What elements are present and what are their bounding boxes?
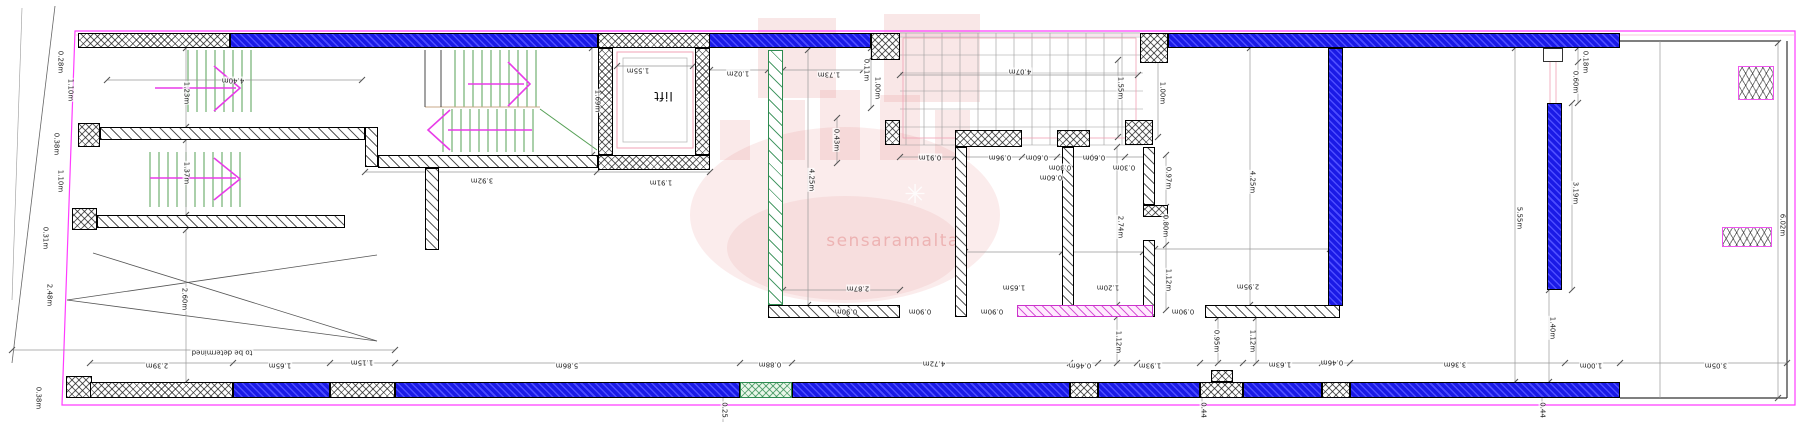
dim-label: 0.97m — [1165, 166, 1172, 190]
dim-label: 0.28m — [57, 50, 64, 74]
dim-label: 2.74m — [1117, 215, 1124, 239]
dim-label: 1.12m — [1249, 329, 1256, 353]
dim-label: 1.00m — [874, 76, 881, 100]
dim-label: 6.02m — [1779, 213, 1786, 237]
dim-label: 1.55m — [1117, 76, 1124, 100]
dim-label: 1.65m — [1002, 284, 1026, 291]
dim-label: 0.91m — [918, 154, 942, 161]
dim-label: 0.46m — [1320, 359, 1344, 366]
dim-label: 1.20m — [1096, 284, 1120, 291]
dim-label: 5.86m — [555, 362, 579, 369]
dim-label: 0.18m — [1582, 50, 1589, 74]
dim-label: 3.92m — [470, 177, 494, 184]
lift-label: lift — [652, 90, 673, 102]
dim-label: 2.95m — [1236, 283, 1260, 290]
dim-label: 0.43m — [833, 128, 840, 152]
dim-label: 1.15m — [350, 359, 374, 366]
dim-label: 2.87m — [846, 285, 870, 292]
dim-label: 3.36m — [1443, 361, 1467, 368]
dim-label: 1.73m — [817, 71, 841, 78]
dim-label: 3.05m — [1704, 362, 1728, 369]
dim-label: 2.48m — [46, 283, 53, 307]
dim-label: 2.60m — [181, 287, 188, 311]
dim-label: 4.25m — [1249, 170, 1256, 194]
dim-label: 0.96m — [988, 154, 1012, 161]
dim-label: 0.88m — [758, 361, 782, 368]
dim-label: 1.02m — [726, 70, 750, 77]
dim-label: 0.90m — [980, 308, 1004, 315]
dim-label: 0.80m — [1162, 214, 1169, 238]
dim-label: 0.38m — [35, 386, 42, 410]
dim-label: 1.91m — [649, 179, 673, 186]
dim-label: 0.60m — [1082, 154, 1106, 161]
dim-label: 0.11m — [863, 58, 870, 82]
dim-label: 0.60m — [1025, 154, 1049, 161]
dim-label: 0.90m — [1171, 308, 1195, 315]
dim-label: 1.69m — [594, 89, 601, 113]
dim-label: 0.30m — [1048, 164, 1072, 171]
dim-label: 1.65m — [268, 362, 292, 369]
dim-label: 1.12m — [1115, 330, 1122, 354]
dim-label: 4.07m — [1008, 68, 1032, 75]
dim-label: 1.63m — [1268, 361, 1292, 368]
dim-label: 0.31m — [42, 226, 49, 250]
dim-label: 1.10m — [57, 169, 64, 193]
dim-label: 0.90m — [908, 308, 932, 315]
dim-label: 0.60m — [1572, 70, 1579, 94]
dim-label: 1.10m — [67, 78, 74, 102]
note-label: to be determined — [191, 349, 254, 356]
dim-label: 0.60m — [1039, 174, 1063, 181]
dim-label: 1.40m — [1549, 316, 1556, 340]
dim-label: 1.55m — [626, 67, 650, 74]
dim-label: 0.46m — [1068, 362, 1092, 369]
dim-label: 0.30m — [1112, 164, 1136, 171]
dim-label: 4.25m — [808, 168, 815, 192]
dim-label: 0.90m — [834, 308, 858, 315]
dim-label: 4.72m — [922, 360, 946, 367]
dim-label: 1.00m — [1159, 81, 1166, 105]
dim-label: 1.37m — [183, 161, 190, 185]
dim-label: 0.44 — [1200, 401, 1207, 419]
floor-plan-canvas: ✳ sensaramalta 0.28m1.10m0.38m1.10m0.31m… — [0, 0, 1813, 422]
dim-label: 2.39m — [145, 362, 169, 369]
dim-label: 0.25 — [721, 401, 728, 419]
dimension-labels-layer: 0.28m1.10m0.38m1.10m0.31m2.48m0.38m1.23m… — [0, 0, 1813, 422]
dim-label: 0.44 — [1539, 401, 1546, 419]
dim-label: 3.19m — [1572, 181, 1579, 205]
dim-label: 1.23m — [183, 81, 190, 105]
dim-label: 5.55m — [1516, 206, 1523, 230]
dim-label: 4.40m — [221, 77, 245, 84]
dim-label: 0.38m — [53, 132, 60, 156]
dim-label: 1.93m — [1138, 362, 1162, 369]
dim-label: 1.00m — [1579, 362, 1603, 369]
dim-label: 0.95m — [1213, 329, 1220, 353]
dim-label: 1.12m — [1165, 268, 1172, 292]
